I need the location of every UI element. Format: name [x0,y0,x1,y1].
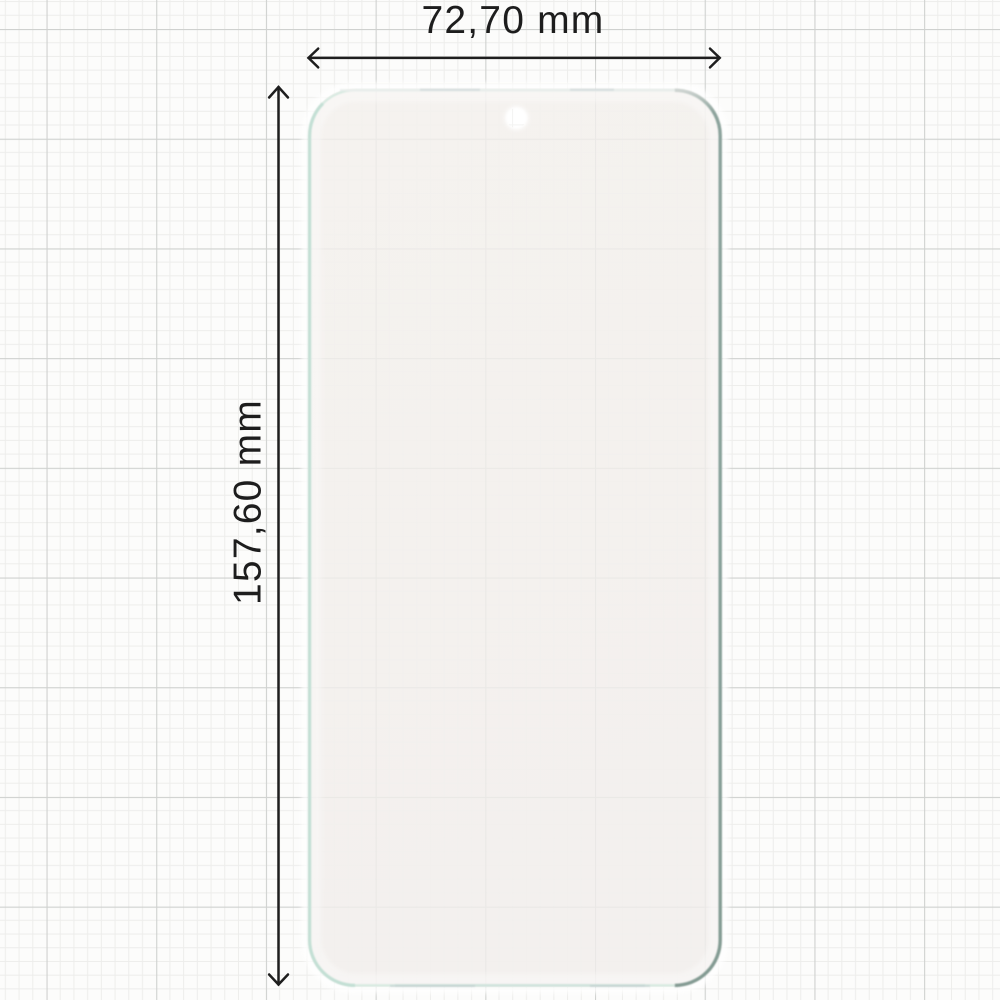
svg-text:157,60 mm: 157,60 mm [227,399,270,605]
svg-text:72,70 mm: 72,70 mm [421,0,604,42]
